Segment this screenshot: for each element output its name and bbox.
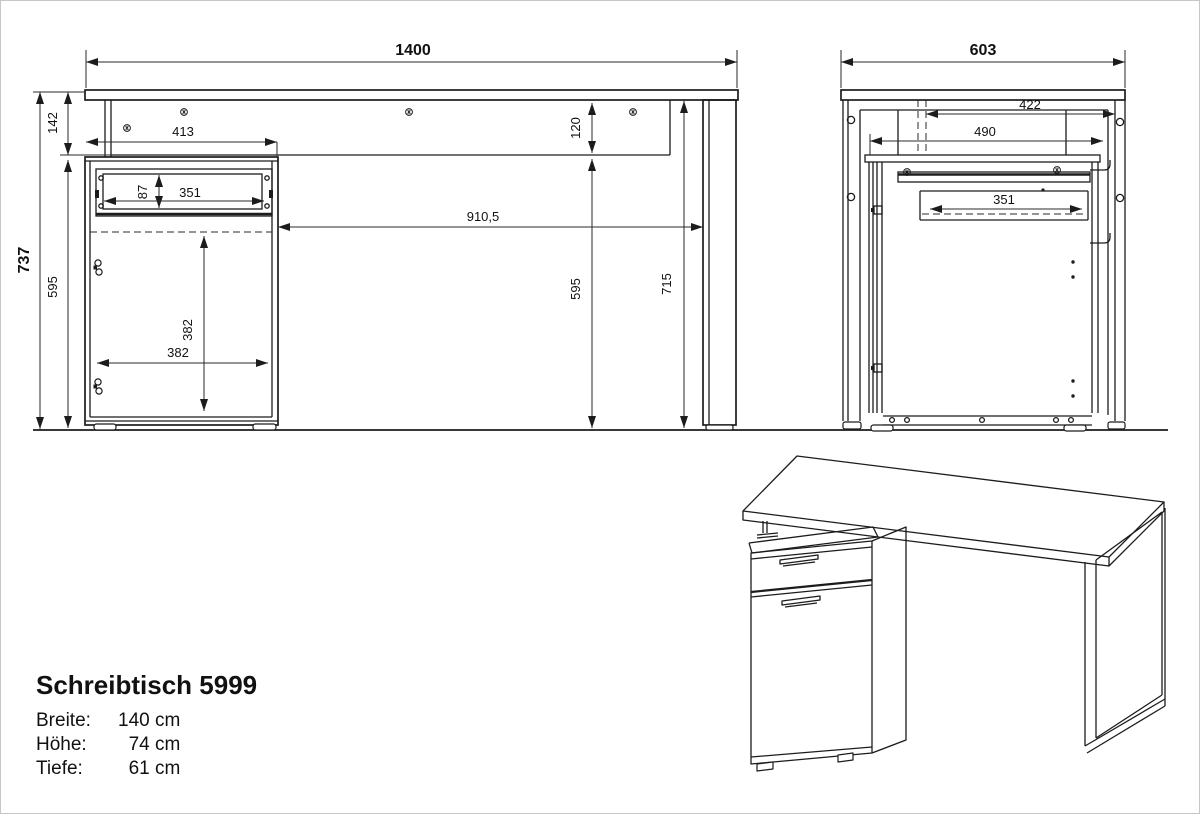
side-frame-leg — [843, 100, 1125, 429]
dim-drawer-height: 87 — [135, 185, 150, 199]
front-desktop — [85, 90, 738, 100]
foot — [253, 424, 276, 430]
foot — [94, 424, 116, 430]
dim-cabinet-height-right: 595 — [568, 278, 583, 300]
dim-drawer-depth: 351 — [993, 192, 1015, 207]
dim-cabinet-height-left: 595 — [45, 276, 60, 298]
dim-door-inner-width: 382 — [167, 345, 189, 360]
dim-door-inner-height: 382 — [180, 319, 195, 341]
screw-icon — [181, 109, 188, 116]
spec-value: 61 cm — [118, 757, 180, 781]
spec-label: Breite: — [36, 709, 118, 733]
dim-drawer-width: 351 — [179, 185, 201, 200]
dim-rear-inset: 422 — [1019, 97, 1041, 112]
spec-value: 74 cm — [118, 733, 180, 757]
screw-icon — [630, 109, 637, 116]
dim-leg-height: 715 — [659, 273, 674, 295]
side-dimensions: 603 422 490 351 — [841, 42, 1125, 209]
dim-top-depth: 490 — [974, 124, 996, 139]
side-cabinet — [865, 155, 1110, 431]
dim-knee-space: 910,5 — [467, 209, 500, 224]
spec-label: Höhe: — [36, 733, 118, 757]
spec-value: 140 cm — [118, 709, 180, 733]
side-view: 603 422 490 351 — [841, 42, 1125, 431]
screw-icon — [124, 125, 131, 132]
spec-label: Tiefe: — [36, 757, 118, 781]
dim-total-width: 1400 — [395, 42, 431, 59]
dim-total-depth: 603 — [970, 42, 997, 59]
dim-top-section: 142 — [45, 112, 60, 134]
spec-row-tiefe: Tiefe: 61 cm — [36, 757, 180, 781]
screw-icon — [406, 109, 413, 116]
dim-total-height: 737 — [16, 247, 33, 274]
dim-apron-height: 120 — [568, 117, 583, 139]
front-view: 1400 737 142 595 413 87 351 910,5 120 59… — [16, 42, 738, 430]
hinge-icon — [94, 379, 103, 394]
product-info: Schreibtisch 5999 Breite: 140 cm Höhe: 7… — [36, 670, 257, 781]
spec-row-hoehe: Höhe: 74 cm — [36, 733, 180, 757]
spec-table: Breite: 140 cm Höhe: 74 cm Tiefe: 61 cm — [36, 709, 180, 781]
spec-row-breite: Breite: 140 cm — [36, 709, 180, 733]
technical-drawing-page: 1400 737 142 595 413 87 351 910,5 120 59… — [0, 0, 1200, 814]
front-leg — [703, 100, 736, 430]
product-title: Schreibtisch 5999 — [36, 670, 257, 701]
perspective-view — [743, 456, 1165, 771]
side-desktop — [841, 90, 1125, 100]
dim-top-inset: 413 — [172, 124, 194, 139]
hinge-icon — [94, 260, 103, 275]
